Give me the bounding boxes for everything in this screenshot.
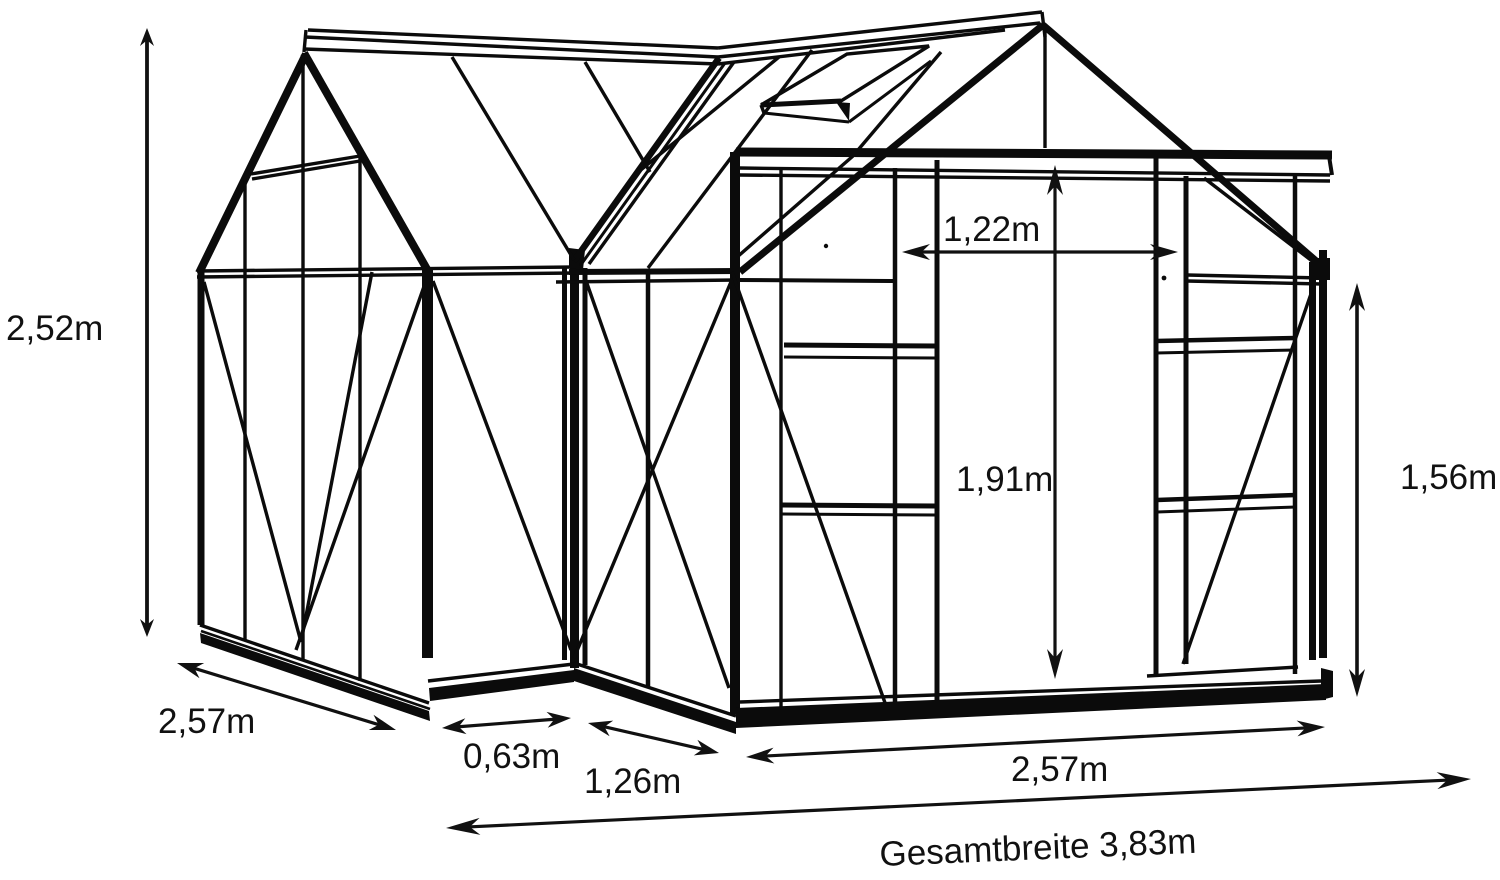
svg-text:1,26m: 1,26m	[584, 762, 681, 801]
svg-text:1,91m: 1,91m	[956, 460, 1053, 499]
svg-text:0,63m: 0,63m	[463, 737, 560, 776]
svg-text:1,56m: 1,56m	[1400, 458, 1497, 497]
svg-text:2,57m: 2,57m	[1011, 750, 1108, 789]
svg-text:2,52m: 2,52m	[6, 309, 103, 348]
svg-text:Gesamtbreite 3,83m: Gesamtbreite 3,83m	[879, 822, 1197, 874]
svg-text:1,22m: 1,22m	[943, 210, 1040, 249]
svg-text:2,57m: 2,57m	[158, 702, 255, 741]
